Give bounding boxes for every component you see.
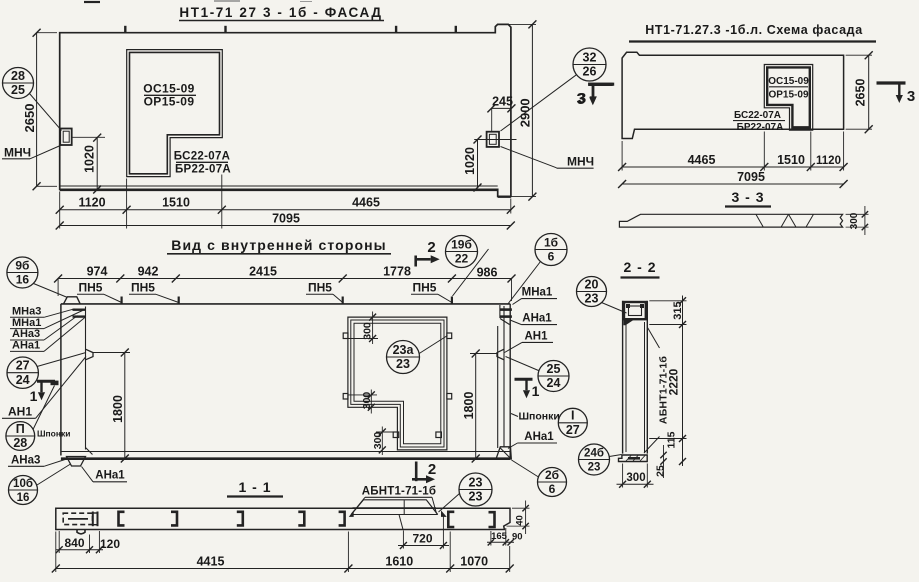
svg-text:23: 23	[469, 490, 483, 504]
svg-text:1120: 1120	[78, 196, 105, 210]
svg-text:27: 27	[566, 423, 580, 437]
svg-text:16: 16	[16, 273, 30, 287]
svg-text:ПН5: ПН5	[131, 281, 155, 295]
svg-text:1 - 1: 1 - 1	[238, 479, 271, 495]
svg-text:1510: 1510	[162, 196, 190, 210]
svg-text:24б: 24б	[584, 447, 604, 459]
svg-text:АБНТ1-71-1б: АБНТ1-71-1б	[362, 486, 436, 498]
svg-text:986: 986	[477, 265, 498, 279]
svg-text:23: 23	[588, 462, 601, 474]
svg-text:7095: 7095	[737, 170, 765, 184]
svg-text:4415: 4415	[197, 554, 225, 568]
svg-text:1020: 1020	[463, 147, 477, 175]
svg-text:2220: 2220	[667, 368, 681, 395]
svg-text:МНЧ: МНЧ	[4, 146, 31, 160]
svg-text:МНа3: МНа3	[12, 306, 41, 318]
svg-text:Шпонки: Шпонки	[37, 429, 70, 439]
svg-text:16: 16	[17, 492, 30, 504]
svg-text:1510: 1510	[777, 153, 805, 167]
svg-text:300: 300	[626, 472, 645, 484]
svg-text:ПН5: ПН5	[413, 281, 437, 295]
svg-text:27: 27	[16, 359, 30, 373]
svg-text:I: I	[571, 409, 574, 423]
svg-text:АНа1: АНа1	[95, 470, 125, 482]
svg-text:25: 25	[547, 362, 561, 376]
svg-text:115: 115	[666, 431, 678, 448]
svg-text:28: 28	[13, 436, 27, 450]
svg-text:23а: 23а	[393, 343, 415, 357]
svg-text:2 - 2: 2 - 2	[623, 259, 656, 275]
svg-text:300: 300	[361, 392, 373, 410]
svg-text:АНа1: АНа1	[12, 340, 40, 352]
svg-text:1070: 1070	[460, 554, 488, 568]
svg-text:ОС15-09: ОС15-09	[143, 82, 195, 96]
svg-text:25: 25	[655, 465, 667, 477]
svg-text:32: 32	[583, 50, 597, 64]
svg-text:Вид с внутренней стороны: Вид с внутренней стороны	[171, 237, 387, 253]
svg-text:БС22-07А: БС22-07А	[174, 151, 231, 163]
svg-text:3 - 3: 3 - 3	[731, 189, 764, 205]
svg-text:4465: 4465	[688, 153, 716, 167]
svg-text:1800: 1800	[462, 392, 476, 420]
svg-text:25: 25	[11, 83, 25, 97]
svg-text:ОР15-09: ОР15-09	[144, 95, 195, 109]
svg-text:6: 6	[549, 482, 556, 496]
svg-text:24: 24	[16, 373, 30, 387]
svg-text:28: 28	[11, 69, 25, 83]
svg-text:МНЧ: МНЧ	[567, 155, 594, 169]
svg-text:10б: 10б	[13, 478, 33, 490]
svg-text:1120: 1120	[816, 155, 841, 167]
svg-text:2415: 2415	[249, 264, 277, 278]
svg-text:300: 300	[362, 322, 374, 340]
svg-text:НТ1-71.27.3 -1б.л. Схема фаса: НТ1-71.27.3 -1б.л. Схема фасада	[645, 23, 863, 37]
svg-text:3: 3	[578, 90, 586, 107]
svg-text:26: 26	[583, 65, 597, 79]
svg-text:Шпонки: Шпонки	[519, 411, 560, 423]
svg-text:1778: 1778	[383, 264, 411, 278]
svg-text:24: 24	[547, 376, 561, 390]
svg-text:1800: 1800	[111, 395, 125, 423]
svg-text:974: 974	[87, 264, 108, 278]
svg-text:НТ1-71 27 3 - 1б - ФАСАД: НТ1-71 27 3 - 1б - ФАСАД	[179, 5, 382, 20]
svg-text:6: 6	[548, 250, 555, 264]
svg-text:300: 300	[372, 432, 384, 450]
svg-text:3: 3	[907, 88, 915, 105]
svg-text:БР22-07А: БР22-07А	[737, 122, 784, 133]
svg-text:МНа1: МНа1	[522, 287, 553, 299]
svg-text:840: 840	[64, 536, 84, 550]
svg-text:20: 20	[585, 277, 599, 291]
svg-text:АНа3: АНа3	[12, 328, 40, 340]
svg-text:2: 2	[427, 239, 435, 256]
svg-text:2: 2	[428, 461, 436, 478]
svg-text:315: 315	[672, 301, 684, 319]
svg-text:АНа3: АНа3	[11, 455, 40, 467]
svg-text:АНа1: АНа1	[522, 313, 552, 325]
svg-text:22: 22	[455, 252, 469, 266]
svg-text:П: П	[16, 422, 25, 436]
svg-text:165: 165	[491, 531, 508, 542]
svg-text:БС22-07А: БС22-07А	[734, 110, 781, 121]
svg-text:4465: 4465	[352, 196, 380, 210]
svg-text:9б: 9б	[15, 258, 29, 272]
svg-text:1: 1	[30, 388, 38, 404]
svg-text:23: 23	[585, 292, 599, 306]
svg-text:2650: 2650	[22, 104, 37, 133]
svg-text:МНа1: МНа1	[12, 317, 41, 329]
svg-text:АНа1: АНа1	[524, 431, 554, 443]
svg-text:ПН5: ПН5	[79, 281, 103, 295]
svg-text:ПН5: ПН5	[308, 281, 332, 295]
svg-text:19б: 19б	[451, 237, 472, 251]
svg-text:1610: 1610	[385, 554, 413, 568]
svg-text:942: 942	[138, 264, 159, 278]
svg-text:2650: 2650	[854, 79, 868, 107]
svg-text:720: 720	[412, 532, 432, 546]
svg-text:ОС15-09: ОС15-09	[768, 76, 809, 87]
svg-text:245: 245	[492, 95, 513, 109]
svg-text:90: 90	[512, 532, 523, 543]
svg-text:120: 120	[100, 537, 120, 551]
svg-text:2б: 2б	[545, 468, 559, 482]
svg-text:АН1: АН1	[8, 405, 32, 419]
svg-text:1б: 1б	[544, 235, 558, 249]
svg-text:7095: 7095	[272, 212, 300, 226]
svg-text:БР22-07А: БР22-07А	[175, 164, 231, 176]
svg-text:ОР15-09: ОР15-09	[768, 90, 808, 101]
svg-text:23: 23	[469, 475, 483, 489]
svg-text:АН1: АН1	[524, 331, 548, 343]
svg-text:1020: 1020	[83, 145, 97, 173]
svg-text:40: 40	[515, 515, 526, 526]
svg-text:1: 1	[532, 383, 540, 399]
svg-text:23: 23	[396, 357, 410, 371]
